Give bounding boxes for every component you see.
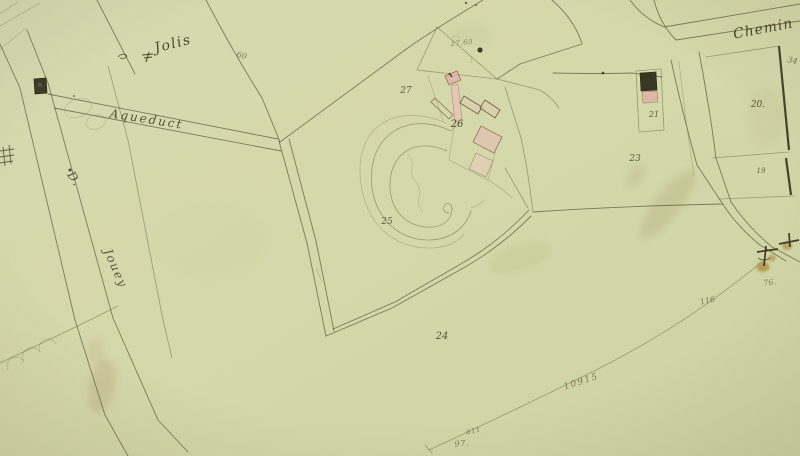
edge-vignette — [0, 0, 800, 456]
map-canvas: JolisAqueductD.JoueyChemin27262524232120… — [0, 0, 800, 456]
cadastral-map-scan: JolisAqueductD.JoueyChemin27262524232120… — [0, 0, 800, 456]
